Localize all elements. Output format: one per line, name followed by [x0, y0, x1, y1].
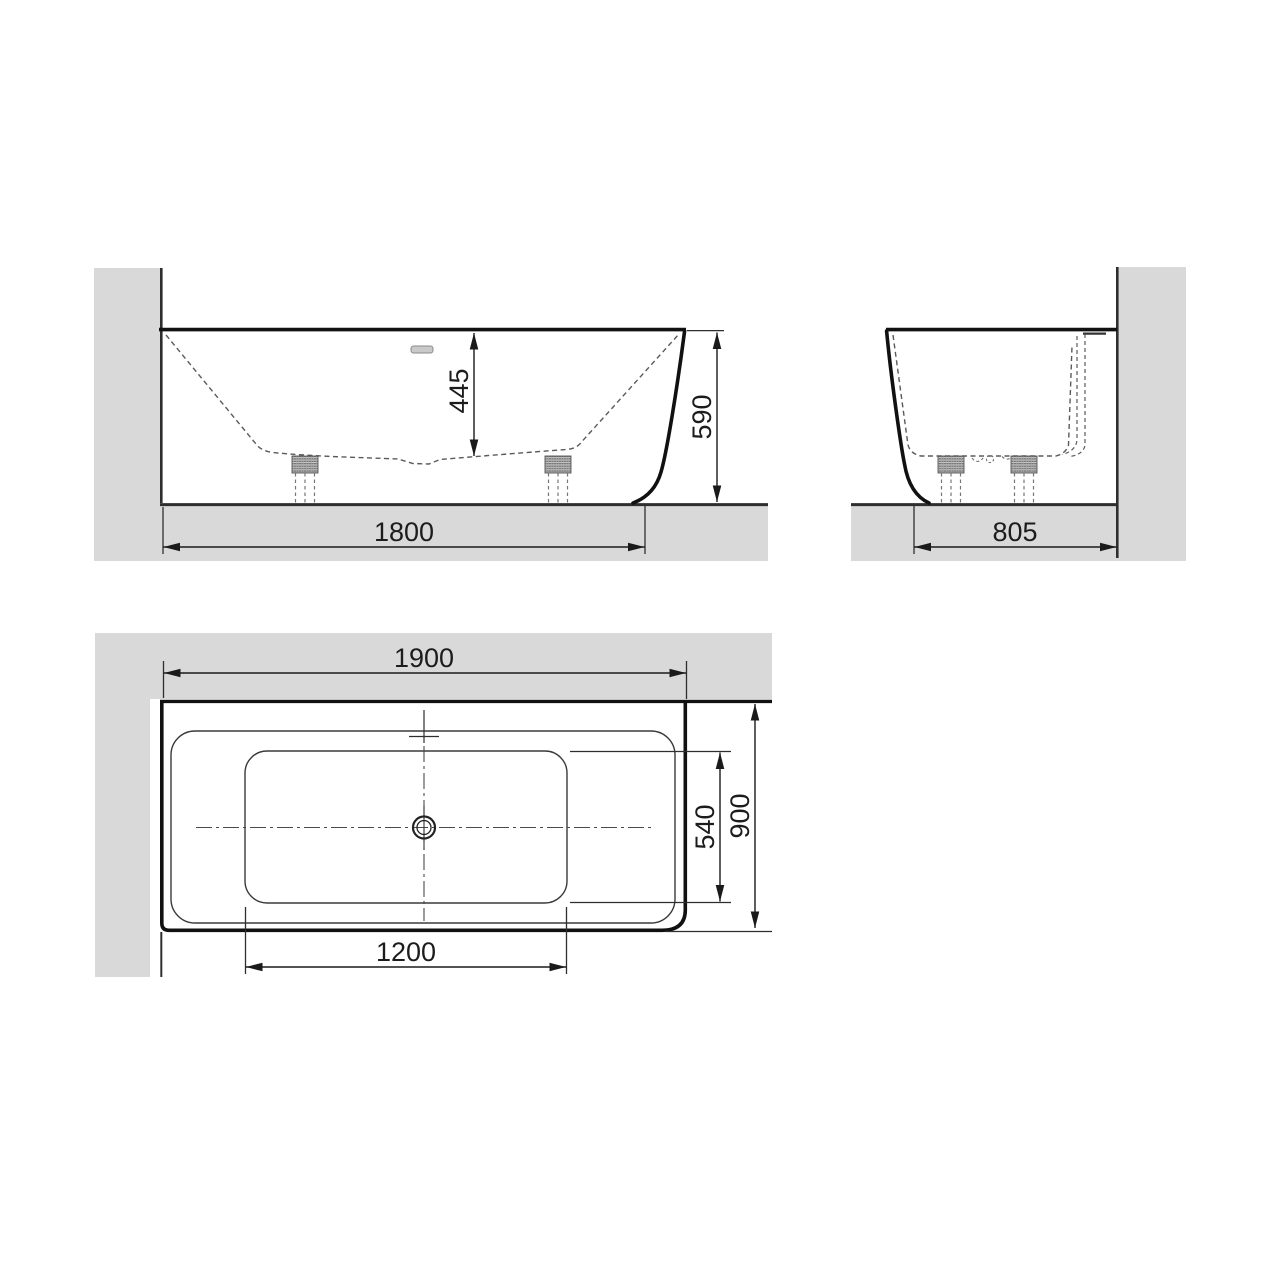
dimension-label-805: 805 [992, 517, 1037, 547]
tub-foot-right [545, 456, 571, 503]
overflow-slot [411, 346, 433, 353]
dimension-label-590: 590 [687, 394, 717, 439]
plan-view: 1900 900 540 1200 [95, 633, 772, 977]
dimension-label-445: 445 [444, 368, 474, 413]
plan-wall-left [95, 633, 150, 977]
drawing-canvas: 445 590 1800 [0, 0, 1280, 1280]
dimension-basin-length: 1200 [246, 907, 567, 974]
end-wall-side-profile-dashed [1062, 334, 1085, 457]
end-foot-right [1011, 456, 1037, 503]
dimension-label-1200: 1200 [376, 937, 436, 967]
bathtub-dimension-drawing: 445 590 1800 [0, 0, 1280, 1280]
side-elevation-view: 445 590 1800 [94, 268, 768, 561]
end-inner-profile-dashed [893, 335, 1072, 456]
dimension-label-900: 900 [725, 793, 755, 838]
dimension-overall-height: 590 [687, 331, 724, 502]
tub-foot-left [292, 456, 318, 503]
dimension-label-540: 540 [690, 804, 720, 849]
dimension-inner-depth: 445 [444, 333, 474, 456]
end-elevation-view: 805 [851, 267, 1186, 561]
end-foot-left [938, 456, 964, 503]
waste-pipe-dashed [972, 457, 1012, 462]
dimension-label-1800: 1800 [374, 517, 434, 547]
end-front-edge [887, 331, 929, 503]
dimension-label-1900: 1900 [394, 643, 454, 673]
